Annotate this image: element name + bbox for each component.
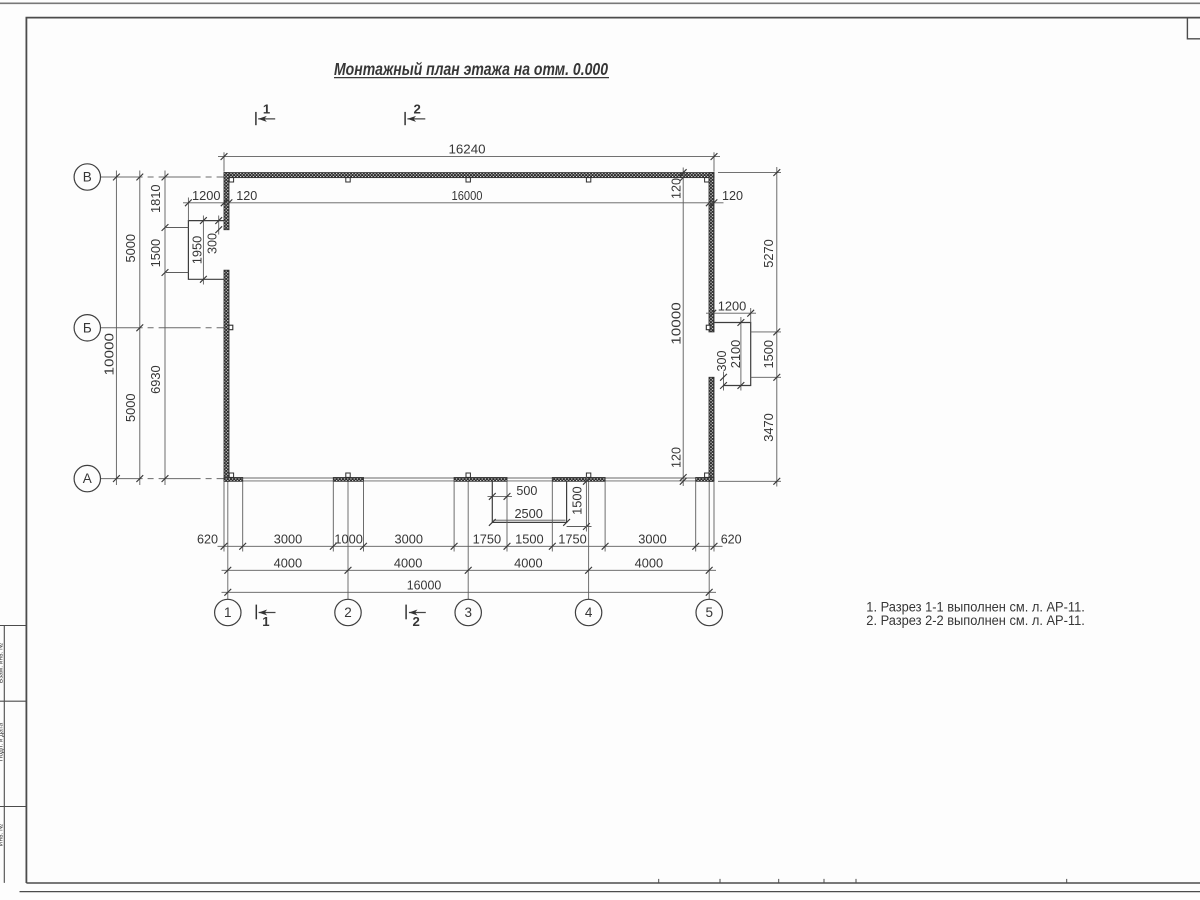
svg-text:Б: Б bbox=[83, 320, 92, 335]
svg-text:1810: 1810 bbox=[148, 184, 163, 213]
svg-text:10000: 10000 bbox=[102, 333, 117, 376]
svg-text:1500: 1500 bbox=[570, 486, 585, 514]
svg-text:3470: 3470 bbox=[761, 413, 776, 442]
svg-text:1000: 1000 bbox=[334, 532, 363, 547]
svg-text:1200: 1200 bbox=[192, 188, 221, 203]
svg-text:2: 2 bbox=[414, 102, 421, 117]
svg-text:120: 120 bbox=[669, 178, 684, 199]
svg-text:300: 300 bbox=[205, 233, 220, 254]
svg-text:2100: 2100 bbox=[728, 340, 743, 369]
svg-text:4000: 4000 bbox=[635, 556, 664, 571]
svg-text:120: 120 bbox=[669, 447, 684, 468]
svg-text:16000: 16000 bbox=[407, 577, 442, 592]
svg-text:1750: 1750 bbox=[473, 532, 502, 547]
svg-text:4000: 4000 bbox=[394, 556, 423, 571]
svg-text:5000: 5000 bbox=[123, 234, 138, 263]
svg-text:6930: 6930 bbox=[148, 365, 163, 394]
svg-text:5: 5 bbox=[705, 605, 713, 620]
svg-text:5270: 5270 bbox=[761, 239, 776, 268]
svg-text:300: 300 bbox=[714, 351, 729, 372]
svg-text:4000: 4000 bbox=[274, 556, 303, 571]
svg-text:1: 1 bbox=[262, 614, 269, 629]
svg-text:2500: 2500 bbox=[514, 506, 543, 521]
svg-text:3000: 3000 bbox=[638, 532, 667, 547]
svg-text:2. Разрез 2-2 выполнен см. л.: 2. Разрез 2-2 выполнен см. л. АР-11. bbox=[866, 613, 1085, 628]
svg-text:620: 620 bbox=[721, 532, 742, 547]
svg-text:10000: 10000 bbox=[669, 302, 684, 345]
svg-text:Взам. инв. №: Взам. инв. № bbox=[0, 643, 5, 683]
svg-text:1200: 1200 bbox=[718, 299, 747, 314]
svg-text:Подп. и дата: Подп. и дата bbox=[0, 722, 5, 761]
svg-text:500: 500 bbox=[516, 483, 537, 498]
svg-text:1950: 1950 bbox=[190, 236, 205, 265]
svg-text:2: 2 bbox=[413, 614, 420, 629]
svg-text:3000: 3000 bbox=[274, 532, 303, 547]
svg-text:3000: 3000 bbox=[395, 532, 424, 547]
svg-text:4000: 4000 bbox=[514, 556, 543, 571]
svg-text:1500: 1500 bbox=[148, 239, 163, 268]
svg-text:5000: 5000 bbox=[123, 394, 138, 423]
svg-text:16000: 16000 bbox=[452, 188, 483, 203]
svg-text:2: 2 bbox=[344, 605, 352, 620]
svg-text:120: 120 bbox=[236, 188, 257, 203]
svg-text:А: А bbox=[83, 471, 92, 486]
svg-text:1: 1 bbox=[263, 102, 270, 117]
svg-text:16240: 16240 bbox=[449, 142, 486, 157]
svg-text:В: В bbox=[83, 170, 92, 185]
svg-text:1500: 1500 bbox=[761, 340, 776, 369]
svg-text:120: 120 bbox=[722, 188, 743, 203]
svg-text:Инв. №: Инв. № bbox=[0, 824, 5, 846]
svg-text:620: 620 bbox=[197, 532, 218, 547]
svg-text:1750: 1750 bbox=[558, 532, 587, 547]
svg-text:3: 3 bbox=[464, 605, 472, 620]
svg-text:4: 4 bbox=[585, 605, 593, 620]
svg-text:1500: 1500 bbox=[515, 532, 544, 547]
svg-text:1: 1 bbox=[224, 605, 232, 620]
svg-text:Монтажный план этажа на отм. 0: Монтажный план этажа на отм. 0.000 bbox=[334, 59, 608, 79]
